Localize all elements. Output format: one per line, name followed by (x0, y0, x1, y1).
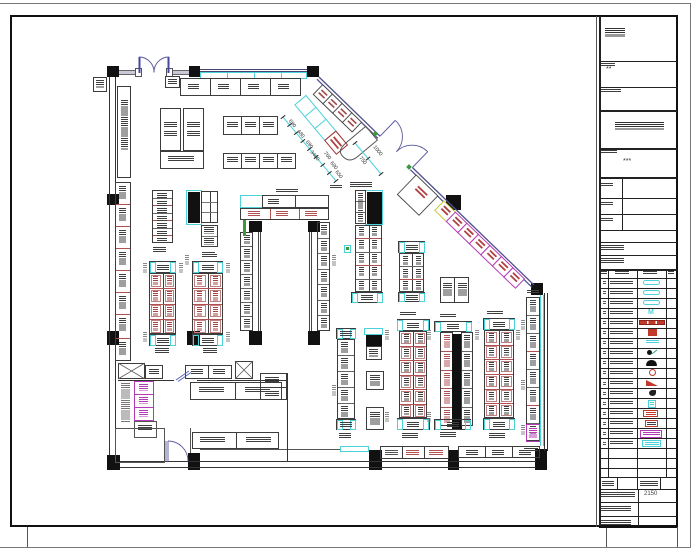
svg-text:750: 750 (357, 155, 367, 166)
svg-text:680: 680 (295, 129, 305, 140)
svg-text:690: 690 (287, 118, 297, 129)
svg-text:690: 690 (304, 139, 314, 150)
svg-text:650: 650 (333, 169, 343, 180)
svg-text:1000: 1000 (371, 144, 383, 157)
svg-text:760: 760 (322, 150, 332, 161)
